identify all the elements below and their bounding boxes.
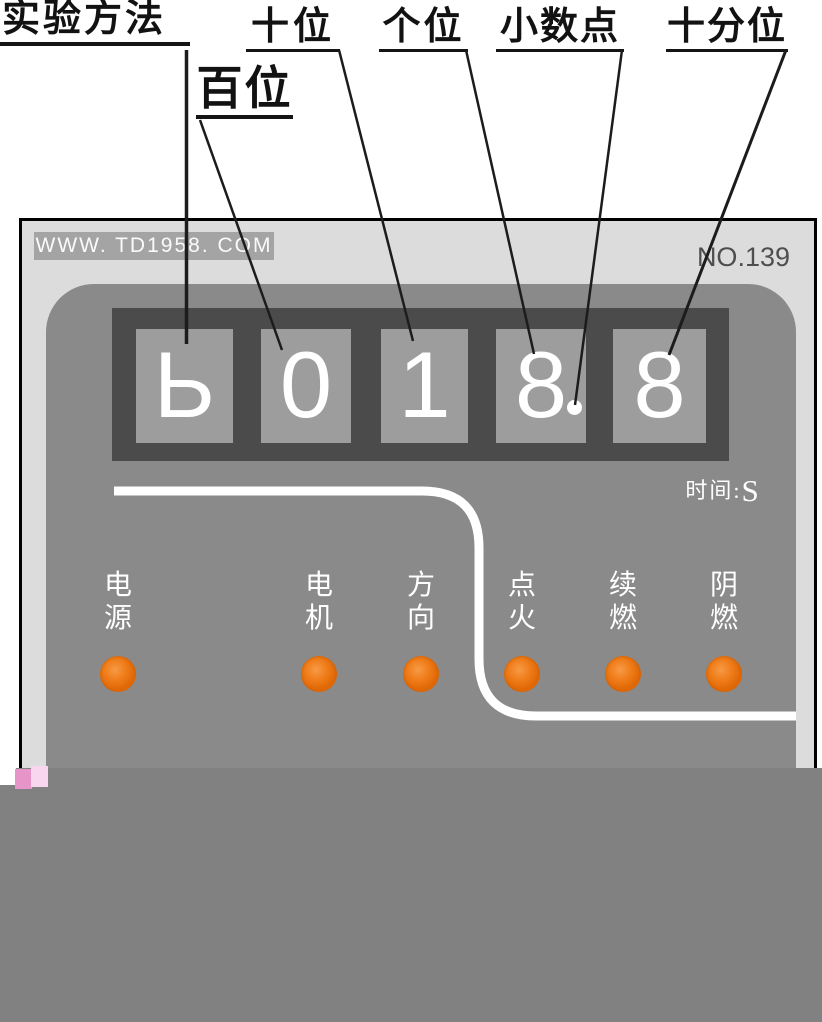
time-unit-prefix: 时间:: [685, 478, 741, 503]
digit-tens: 1: [381, 329, 468, 441]
indicator-power: 电 源: [90, 569, 146, 692]
digit-hundreds: 0: [261, 329, 351, 441]
digit-tenths: 8: [613, 329, 706, 441]
callout-units-label: 个位: [379, 8, 468, 52]
indicator-smolder: 阴 燃: [696, 569, 752, 692]
indicator-afterflame-label: 续: [609, 569, 637, 602]
instrument-panel: WWW. TD1958. COM NO.139 Ь 0 1 8 8 时间:S 电…: [19, 218, 817, 770]
indicator-afterflame: 续 燃: [595, 569, 651, 692]
display-cell-method: Ь: [136, 329, 233, 443]
callout-hundreds-label: 百位: [196, 66, 293, 119]
decimal-dot: [567, 400, 582, 415]
indicator-power-label: 电: [104, 569, 132, 602]
indicator-smolder-label: 阴: [710, 569, 738, 602]
serial-number: NO.139: [670, 242, 790, 273]
bottom-gray-block: [0, 768, 822, 1022]
display-bezel: Ь 0 1 8 8: [112, 308, 729, 461]
indicator-ignition: 点 火: [494, 569, 550, 692]
power-led: [100, 656, 136, 692]
ignition-led: [504, 656, 540, 692]
digit-units: 8: [496, 329, 586, 441]
indicator-direction: 方 向: [393, 569, 449, 692]
watermark-text: WWW. TD1958. COM: [34, 232, 274, 260]
time-unit-label: 时间:S: [642, 473, 802, 509]
callout-method-label: 实验方法: [0, 0, 190, 46]
annotated-instrument-diagram: 实验方法 百位 十位 个位 小数点 十分位 WWW. TD1958. COM N…: [0, 0, 822, 1022]
corner-artifact-pink-light: [31, 766, 48, 787]
indicator-direction-label: 方: [407, 569, 435, 602]
callout-decimal-point-label: 小数点: [496, 8, 624, 52]
motor-led: [301, 656, 337, 692]
indicator-motor: 电 机: [291, 569, 347, 692]
indicator-ignition-label: 点: [508, 569, 536, 602]
afterflame-led: [605, 656, 641, 692]
corner-artifact-pink: [15, 769, 32, 789]
display-cell-hundreds: 0: [261, 329, 351, 443]
digit-method: Ь: [136, 329, 233, 441]
display-cell-tens: 1: [381, 329, 468, 443]
callout-tens-label: 十位: [246, 8, 340, 52]
callout-tenths-label: 十分位: [666, 8, 788, 52]
direction-led: [403, 656, 439, 692]
smolder-led: [706, 656, 742, 692]
display-cell-units: 8: [496, 329, 586, 443]
corner-artifact-white: [0, 768, 16, 785]
indicator-motor-label: 电: [305, 569, 333, 602]
time-unit-seconds: S: [741, 473, 758, 508]
display-cell-tenths: 8: [613, 329, 706, 443]
